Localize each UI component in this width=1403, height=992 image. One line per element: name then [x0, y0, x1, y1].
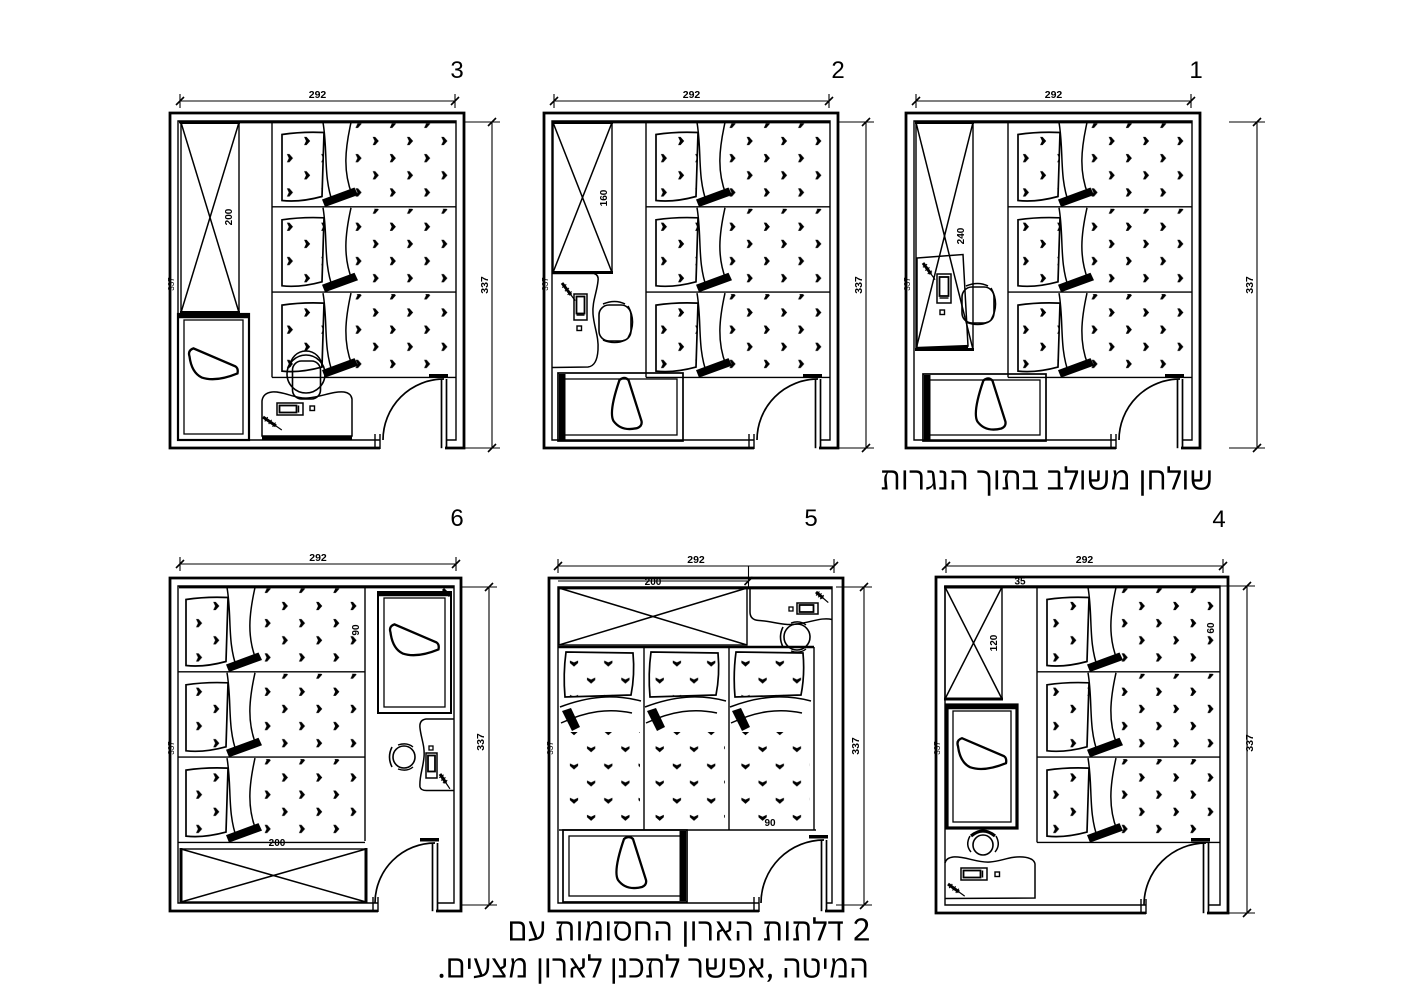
svg-text:337: 337 [933, 741, 942, 755]
svg-text:337: 337 [167, 741, 176, 755]
svg-text:292: 292 [309, 89, 327, 101]
svg-text:90: 90 [351, 624, 362, 636]
svg-text:337: 337 [541, 277, 550, 291]
svg-text:292: 292 [309, 552, 327, 564]
svg-text:337: 337 [850, 737, 862, 755]
svg-text:6: 6 [450, 505, 463, 532]
svg-text:337: 337 [546, 741, 555, 755]
svg-text:200: 200 [269, 838, 286, 849]
svg-text:90: 90 [764, 818, 776, 829]
svg-text:4: 4 [1212, 506, 1225, 533]
svg-text:337: 337 [1244, 734, 1256, 752]
svg-text:3: 3 [450, 57, 463, 84]
svg-text:292: 292 [1045, 89, 1063, 101]
svg-text:337: 337 [853, 276, 865, 294]
svg-text:292: 292 [687, 554, 705, 566]
svg-text:5: 5 [804, 505, 817, 532]
svg-text:60: 60 [1206, 622, 1217, 634]
svg-text:337: 337 [475, 733, 487, 751]
svg-text:200: 200 [224, 208, 235, 225]
svg-text:337: 337 [167, 277, 176, 291]
svg-text:160: 160 [599, 189, 610, 206]
svg-text:120: 120 [989, 634, 1000, 651]
svg-text:240: 240 [956, 227, 967, 244]
svg-text:337: 337 [1244, 276, 1256, 294]
svg-text:337: 337 [479, 276, 491, 294]
svg-text:1: 1 [1189, 57, 1202, 84]
svg-text:337: 337 [903, 277, 912, 291]
svg-text:292: 292 [683, 89, 701, 101]
svg-text:292: 292 [1076, 554, 1094, 566]
svg-text:2: 2 [831, 57, 844, 84]
